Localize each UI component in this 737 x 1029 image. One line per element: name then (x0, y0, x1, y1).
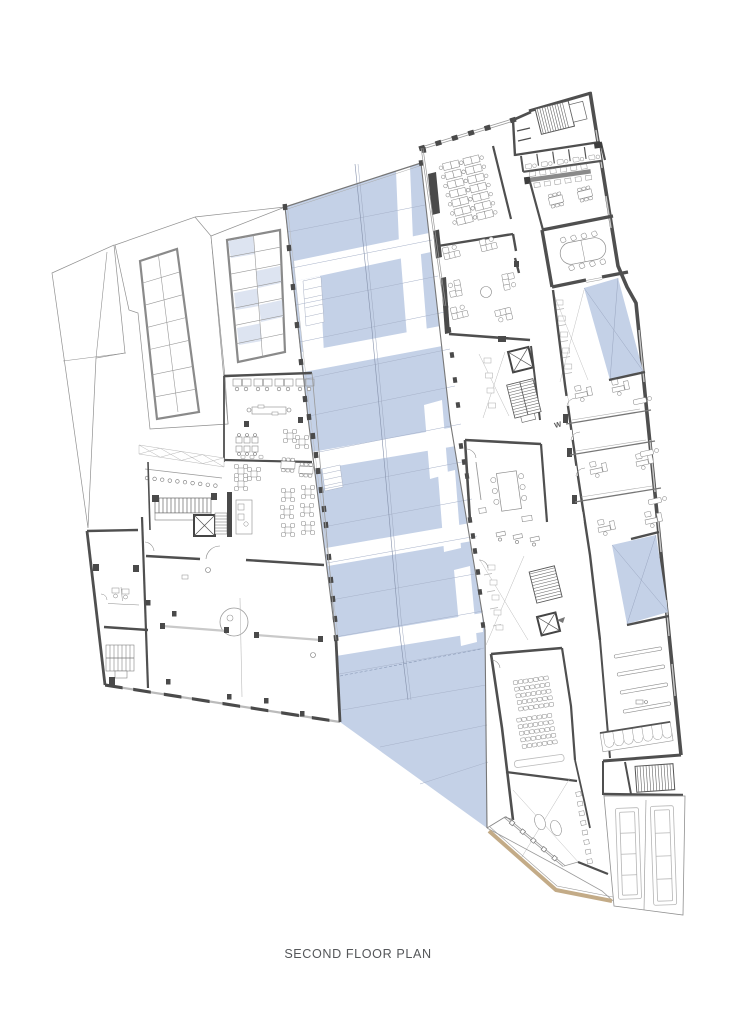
svg-text:SECOND FLOOR PLAN: SECOND FLOOR PLAN (284, 947, 431, 961)
svg-text:W: W (553, 419, 563, 430)
